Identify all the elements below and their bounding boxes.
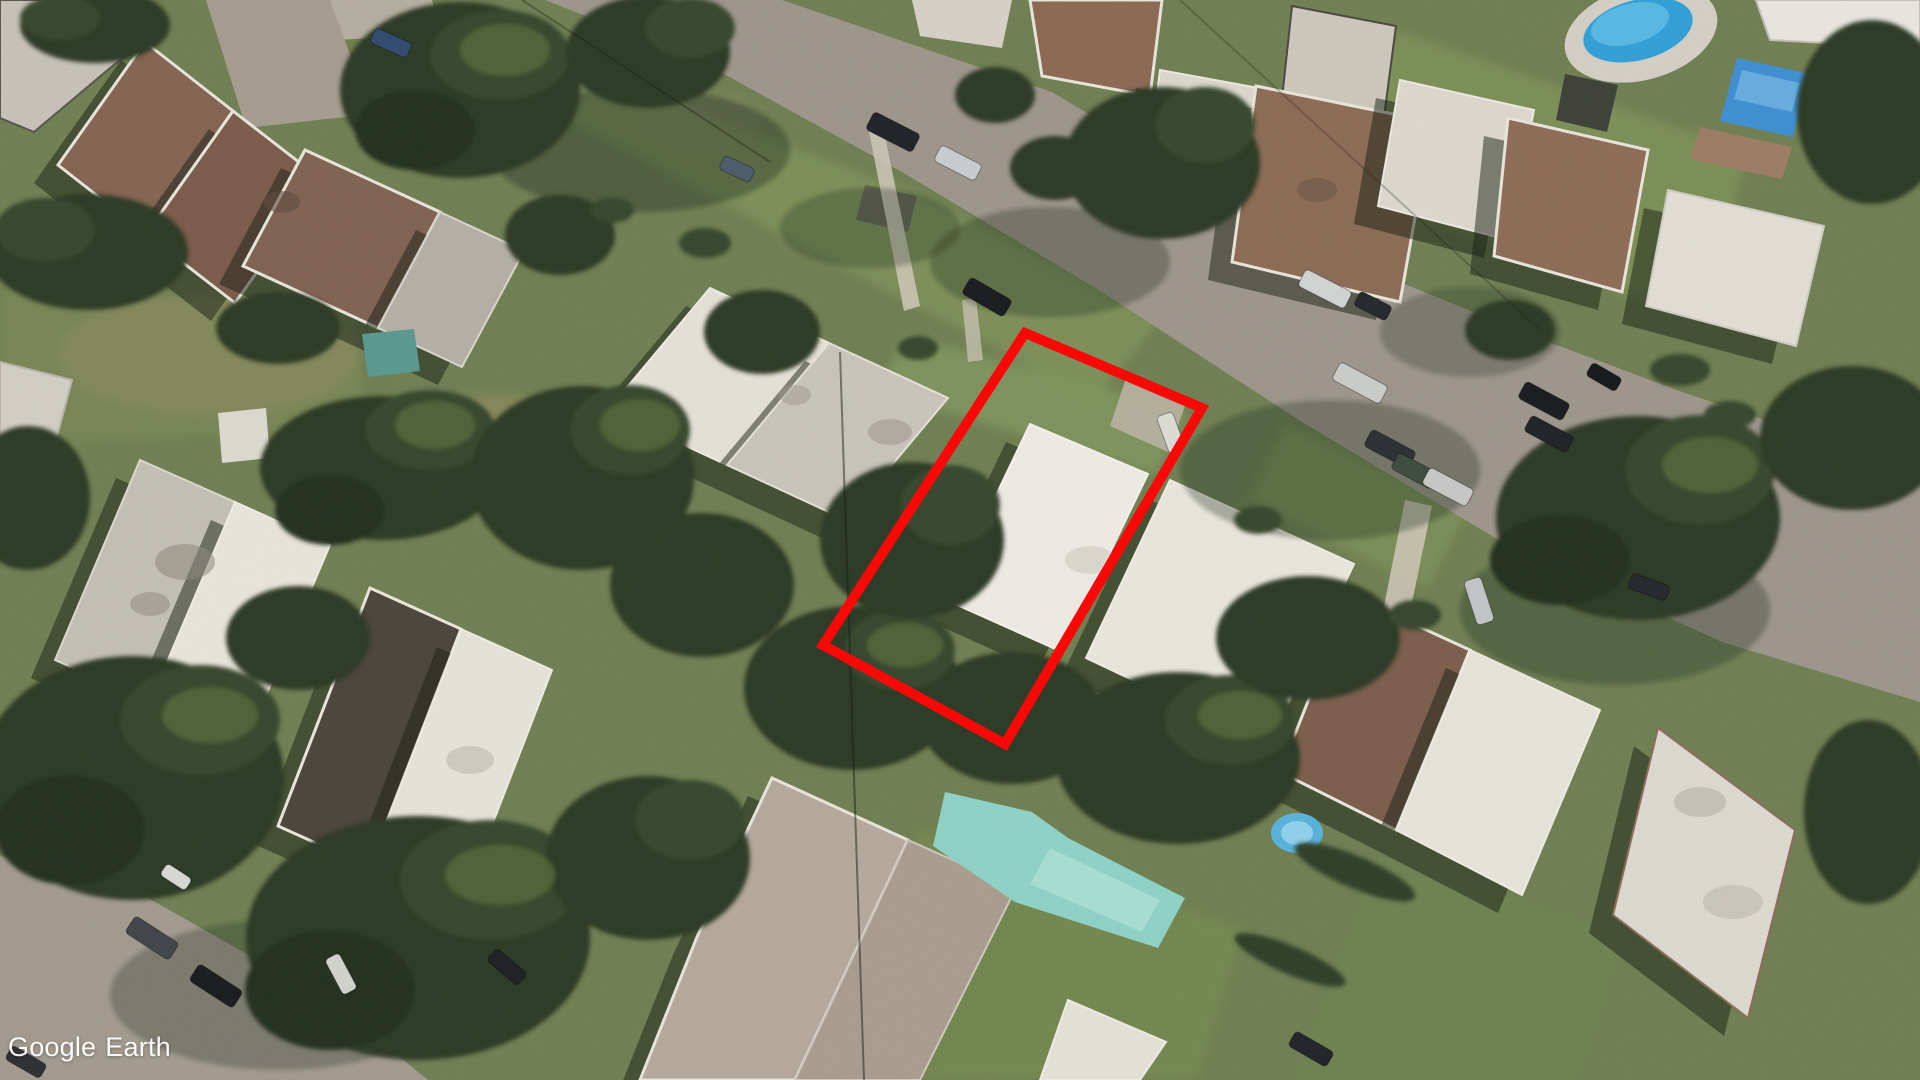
- google-earth-watermark: GoogleEarth: [8, 1032, 171, 1063]
- satellite-view[interactable]: [0, 0, 1920, 1080]
- watermark-earth: Earth: [105, 1032, 171, 1062]
- google-earth-window: GoogleEarth: [0, 0, 1920, 1080]
- photo-grain: [0, 0, 1920, 1080]
- watermark-google: Google: [8, 1032, 96, 1062]
